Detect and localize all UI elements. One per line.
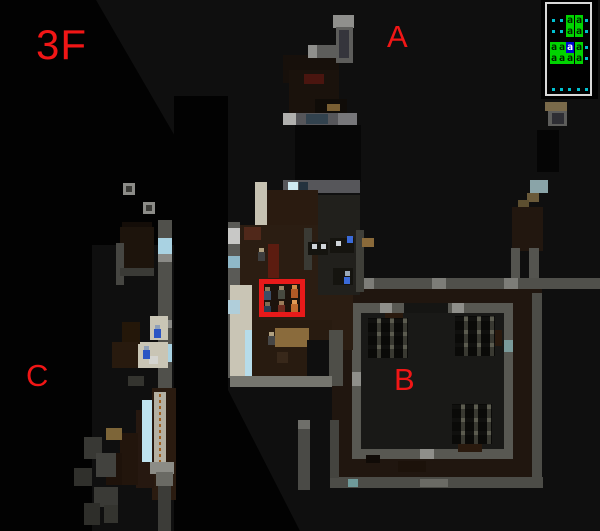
ne-wall-stub2: [529, 248, 539, 280]
cb-table-red: [244, 227, 261, 240]
overmap-tile: a: [566, 53, 574, 64]
floor-label: 3F: [36, 24, 87, 66]
overmap-dot: [585, 46, 588, 49]
a-wall-vert-inner: [339, 30, 349, 58]
pillar1-core: [126, 186, 132, 192]
char-lower-room: [268, 332, 275, 345]
cb-rug: [268, 244, 279, 278]
a-tan-strip: [327, 104, 340, 111]
b-inner-right: [504, 303, 513, 459]
b-inner-right-seg: [504, 340, 513, 352]
cb-upper-window: [306, 114, 328, 124]
overmap-dot: [560, 88, 563, 91]
cb-monitor2: [321, 244, 326, 249]
b-machines-nw: [368, 318, 408, 358]
overmap-tile: a: [575, 26, 583, 37]
char-upper-room-body: [258, 252, 265, 261]
cb-monitor1: [312, 244, 317, 249]
blue-figure-2-body: [143, 350, 150, 359]
cb-monitor3: [336, 241, 341, 246]
pillar2-core: [146, 205, 152, 211]
c-room-floor: [120, 227, 154, 271]
c-room-wall: [116, 243, 124, 285]
a-wall-horiz-cap: [308, 45, 317, 58]
overmap-dot: [585, 19, 588, 22]
overmap-dot: [577, 88, 580, 91]
b-door-top: [404, 303, 448, 313]
overmap-tile: a: [558, 42, 566, 53]
overmap-tile: a: [566, 26, 574, 37]
b-wall-bottom-seg: [420, 479, 448, 487]
overmap-tile: a: [575, 15, 583, 26]
stairs-col-light: [156, 472, 173, 486]
overmap-dot: [568, 88, 571, 91]
cb-blue-item2: [344, 277, 350, 284]
overmap-dot: [560, 30, 563, 33]
overmap-dot: [552, 19, 555, 22]
c-brown2: [112, 342, 138, 368]
stairs-topbit: [128, 376, 144, 386]
overmap-dot: [585, 88, 588, 91]
a-rug: [304, 74, 324, 84]
overmap-tile: a: [558, 53, 566, 64]
cb-tan-shelf: [362, 238, 374, 247]
c-brown1: [122, 322, 140, 344]
ne-black-block: [537, 130, 559, 172]
cb-left-window2: [228, 256, 240, 268]
char-lower-room-body: [268, 336, 275, 345]
b-wall-left-low: [330, 420, 339, 478]
cb-chair: [277, 352, 288, 363]
cb-black-patch: [295, 125, 361, 182]
marker-c: C: [26, 360, 49, 391]
marker-b: B: [394, 364, 416, 395]
overmap-tile: a: [566, 15, 574, 26]
ne-window: [530, 180, 548, 193]
sw-bit5: [84, 503, 100, 525]
ne-wall-stub1: [511, 248, 520, 280]
cb-upper-wall-cap: [283, 113, 296, 125]
lc-seg1: [158, 254, 172, 262]
highlight-box: [259, 279, 305, 317]
b-top-wall-seg3: [504, 278, 518, 289]
lc-window1: [158, 238, 172, 254]
stairs-window: [142, 400, 152, 462]
sw-bit3: [74, 468, 92, 486]
overmap-dot: [552, 30, 555, 33]
c-room-wall2: [120, 268, 154, 276]
game-floor-map: 3F A B C aaaaaaaaaaaa: [0, 0, 600, 531]
blue-figure-1: [154, 325, 161, 338]
overmap-panel: aaaaaaaaaaaa: [545, 2, 592, 96]
b-inner-top-seg2: [452, 303, 464, 313]
b-inner-left-seg: [352, 372, 361, 386]
b-dark-notch: [366, 455, 380, 463]
char-upper-room: [258, 248, 265, 261]
cb-blue-item1: [347, 236, 353, 243]
cb-bottom-wall: [230, 376, 332, 387]
ne-tan: [545, 102, 567, 111]
ne-brown-path: [512, 207, 543, 251]
sw-wall-cap: [298, 420, 310, 429]
stairs-col: [158, 486, 171, 531]
overmap-dot: [552, 88, 555, 91]
overmap-dot: [585, 30, 588, 33]
cb-lower-table: [275, 328, 309, 347]
overmap-tile-current: a: [566, 42, 574, 53]
sw-bit6: [104, 505, 118, 523]
overmap-tile: a: [575, 42, 583, 53]
blue-figure-1-body: [154, 329, 161, 338]
cb-counter: [307, 340, 329, 376]
c-white-obj: [149, 356, 158, 364]
overmap-tile: a: [575, 53, 583, 64]
cb-monitor4: [345, 271, 350, 276]
overmap-dot: [560, 19, 563, 22]
ne-wall-stripes: [552, 113, 564, 124]
b-wall-bottom-teal: [348, 479, 358, 487]
stairs-rail-dots: [159, 394, 161, 462]
b-inner-top-seg1: [380, 303, 392, 313]
b-brown4: [398, 461, 426, 472]
marker-a: A: [387, 21, 409, 52]
cb-left-window3: [228, 300, 240, 314]
overmap-tile: a: [550, 53, 558, 64]
stairs-tan: [106, 428, 122, 440]
overmap-dot: [585, 57, 588, 60]
stairs-brown3: [120, 433, 138, 485]
cb-upper-wall-right: [338, 113, 357, 125]
sw-wall: [298, 420, 310, 490]
b-inner-bottom-seg: [420, 449, 434, 459]
b-top-wall-seg2: [432, 278, 446, 289]
cb-left-window1: [228, 228, 240, 244]
cb-desk3: [333, 268, 353, 285]
b-machines-ne: [455, 316, 495, 356]
blue-figure-2: [143, 346, 150, 359]
overmap-tile: a: [550, 42, 558, 53]
sw-bit2: [96, 453, 116, 477]
b-top-wall: [344, 278, 600, 289]
overmap-inset: aaaaaaaaaaaa: [541, 0, 598, 99]
b-wall-right: [532, 293, 542, 479]
b-machines-se: [452, 404, 492, 444]
